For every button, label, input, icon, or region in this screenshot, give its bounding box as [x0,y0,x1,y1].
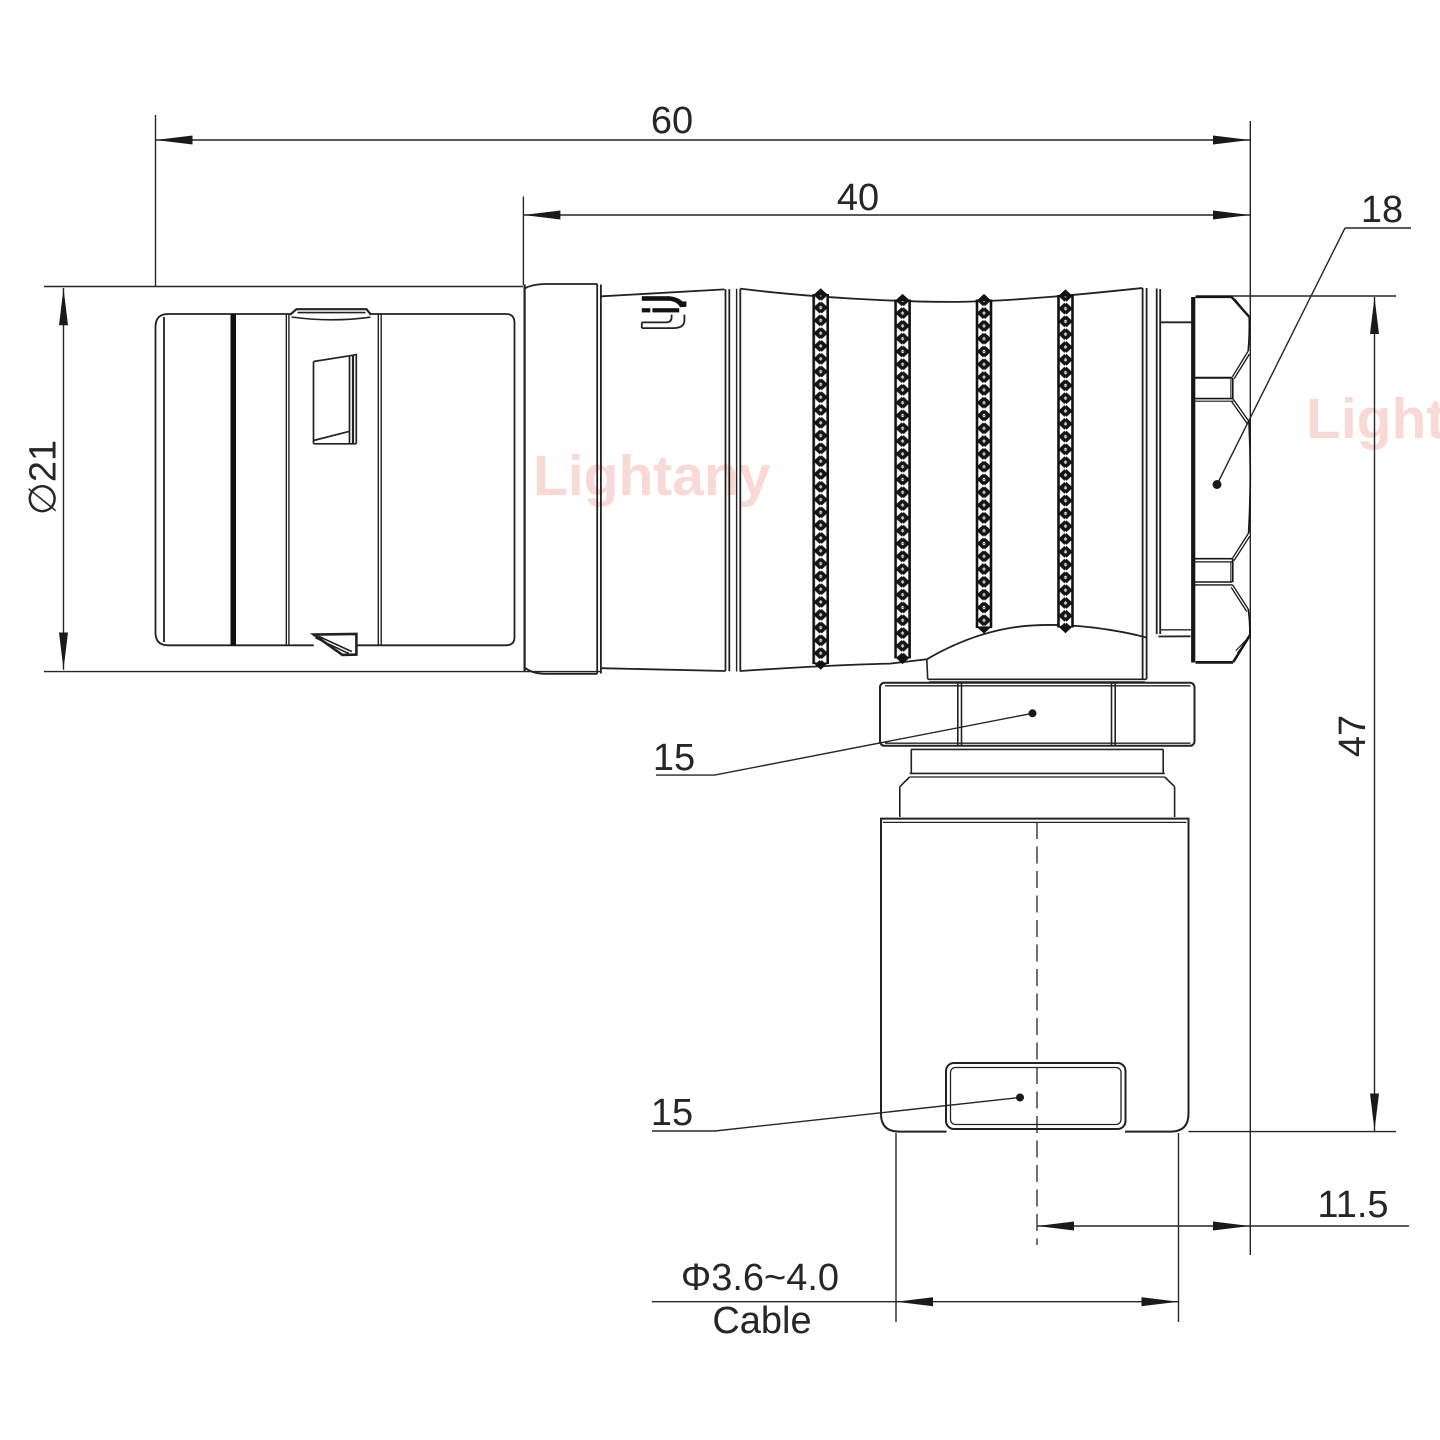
svg-text:15: 15 [653,737,695,779]
svg-text:40: 40 [837,177,879,219]
svg-text:Cable: Cable [712,1300,811,1342]
svg-text:60: 60 [651,100,693,142]
svg-text:Lightany: Lightany [533,444,771,508]
svg-text:Φ3.6~4.0: Φ3.6~4.0 [681,1257,839,1299]
svg-text:18: 18 [1361,189,1403,231]
svg-text:47: 47 [1332,715,1374,757]
svg-text:15: 15 [651,1092,693,1134]
svg-text:11.5: 11.5 [1317,1184,1388,1226]
svg-text:∅21: ∅21 [23,440,65,515]
svg-text:Lightany: Lightany [1306,387,1440,451]
